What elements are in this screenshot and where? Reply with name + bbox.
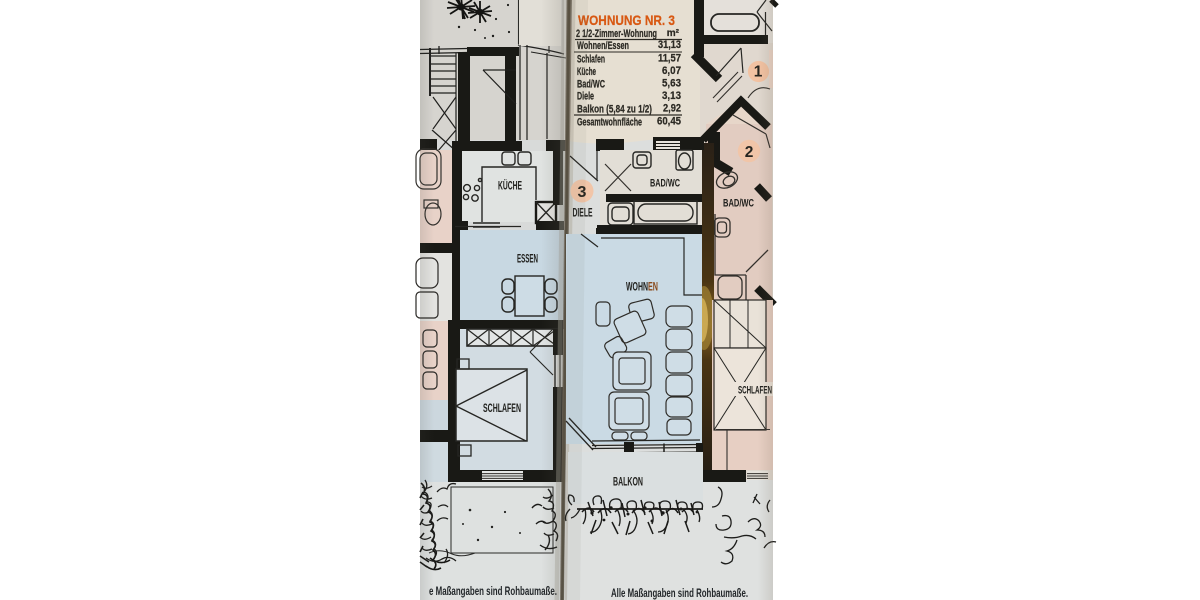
svg-text:3,13: 3,13	[662, 90, 681, 102]
svg-text:WOHNUNG NR. 3: WOHNUNG NR. 3	[578, 12, 675, 28]
svg-text:EN: EN	[648, 282, 658, 294]
svg-text:SCHLAFEN: SCHLAFEN	[483, 403, 521, 415]
svg-text:11,57: 11,57	[658, 53, 681, 65]
svg-text:Alle Maßangaben sind Rohbaumaß: Alle Maßangaben sind Rohbaumaße.	[611, 588, 748, 600]
svg-text:WOHN: WOHN	[626, 282, 648, 294]
svg-text:m²: m²	[667, 28, 680, 39]
svg-text:BAD/WC: BAD/WC	[723, 198, 754, 210]
svg-text:2 1/2-Zimmer-Wohnung: 2 1/2-Zimmer-Wohnung	[576, 28, 657, 40]
svg-text:BALKON: BALKON	[613, 477, 643, 489]
svg-text:6,07: 6,07	[662, 65, 681, 77]
svg-text:31,13: 31,13	[658, 39, 681, 51]
svg-text:Gesamtwohnfläche: Gesamtwohnfläche	[577, 117, 642, 129]
svg-text:ESSEN: ESSEN	[517, 254, 538, 266]
svg-text:e Maßangaben sind Rohbaumaße.: e Maßangaben sind Rohbaumaße.	[429, 586, 557, 598]
svg-text:2,92: 2,92	[663, 103, 681, 115]
svg-text:60,45: 60,45	[657, 116, 681, 128]
svg-text:BAD/WC: BAD/WC	[650, 178, 680, 190]
svg-text:2: 2	[745, 144, 754, 161]
svg-text:5,63: 5,63	[662, 78, 681, 90]
svg-text:Balkon (5,84 zu 1/2): Balkon (5,84 zu 1/2)	[577, 104, 652, 116]
svg-text:KÜCHE: KÜCHE	[498, 180, 522, 193]
